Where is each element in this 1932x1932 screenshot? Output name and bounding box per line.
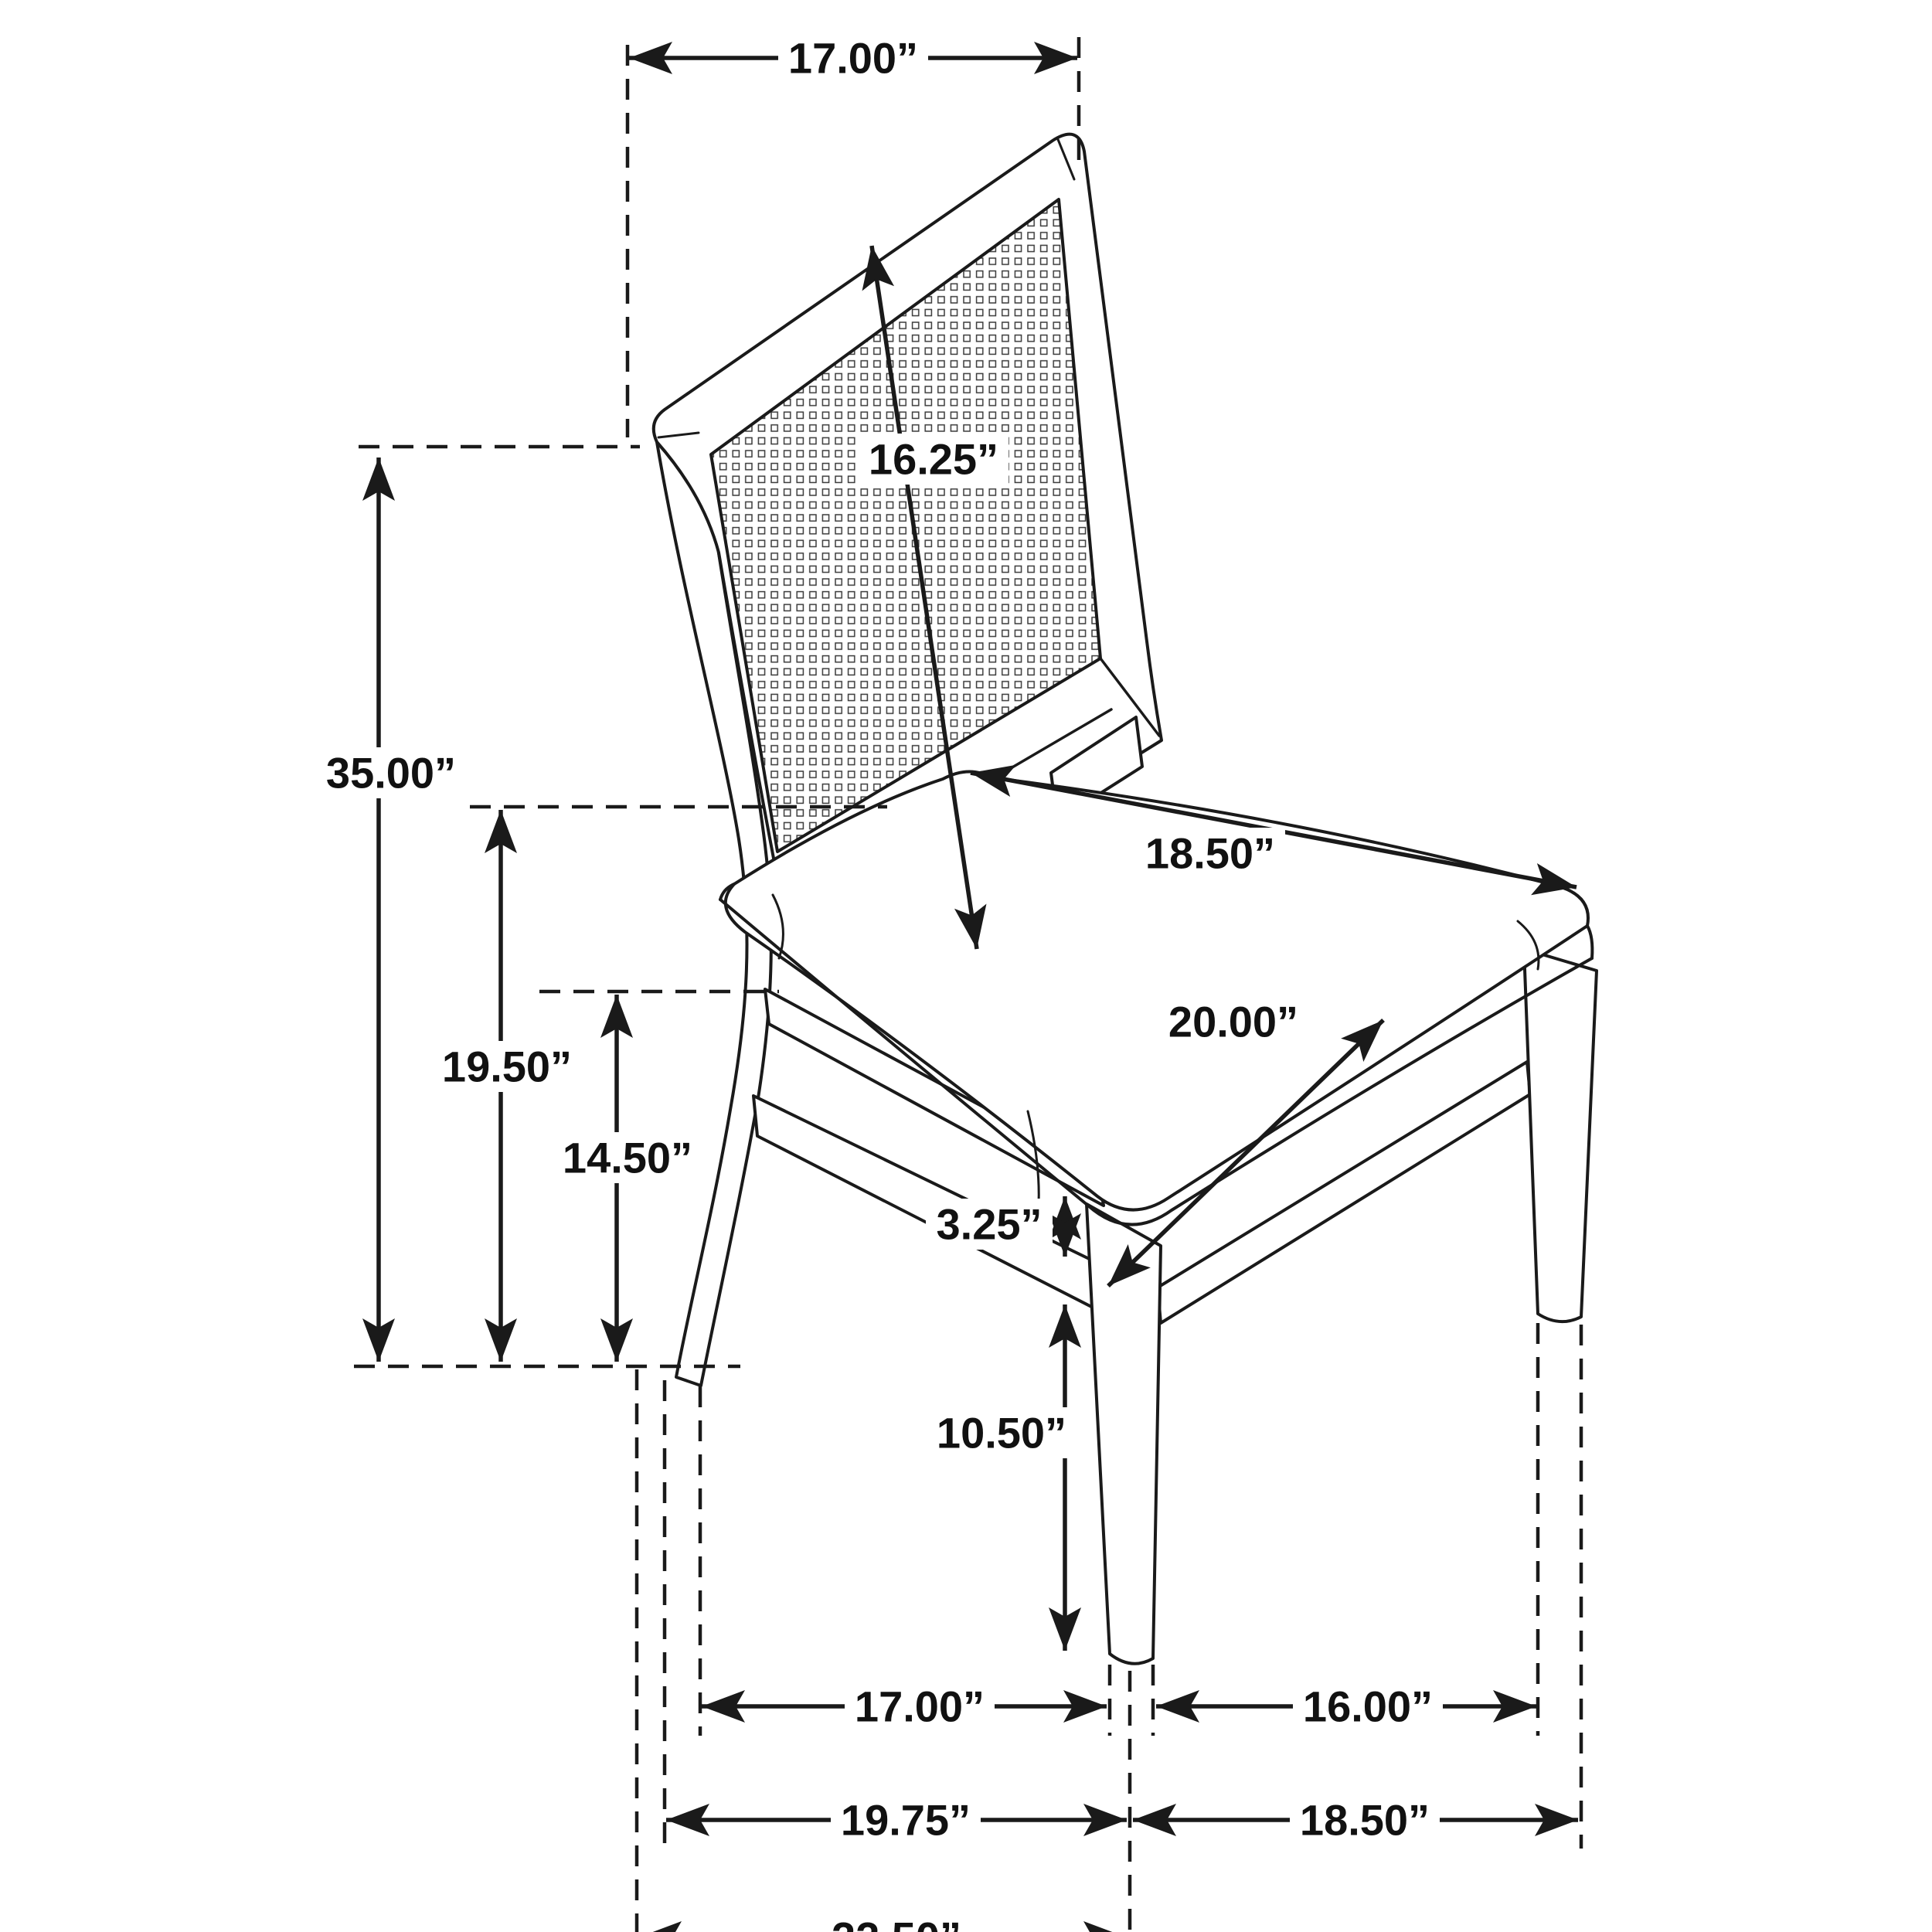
dimension-label: 20.00” bbox=[1168, 998, 1298, 1046]
dimension-label: 18.50” bbox=[1300, 1796, 1430, 1845]
dimension-width-to-right-leg: 18.50” bbox=[1133, 1794, 1578, 1845]
dimension-label: 35.00” bbox=[326, 749, 456, 798]
dimension-label: 3.25” bbox=[937, 1200, 1043, 1249]
diagram-canvas: 17.00”35.00”19.50”14.50”16.25”18.50”20.0… bbox=[0, 0, 1932, 1932]
dimension-label: 19.75” bbox=[841, 1796, 971, 1845]
dimension-seat-height: 19.50” bbox=[432, 810, 582, 1362]
chair-line-art bbox=[654, 134, 1597, 1664]
dimension-overall-depth: 22.50” bbox=[638, 1912, 1127, 1932]
dimension-depth-to-front-leg: 19.75” bbox=[666, 1794, 1127, 1845]
dimension-overall-height: 35.00” bbox=[316, 457, 466, 1362]
dimension-label: 10.50” bbox=[937, 1409, 1066, 1458]
dimension-leg-span-front-inner: 16.00” bbox=[1156, 1681, 1536, 1732]
arrowhead-icon bbox=[638, 1921, 682, 1932]
right-leg bbox=[1524, 949, 1597, 1321]
seat-cushion-band-right-join bbox=[1587, 926, 1592, 958]
dimension-label: 17.00” bbox=[788, 34, 918, 83]
dimension-label: 17.00” bbox=[855, 1682, 985, 1731]
dimension-label: 16.25” bbox=[869, 435, 998, 484]
arrowhead-icon bbox=[1083, 1921, 1127, 1932]
dimension-label: 16.00” bbox=[1303, 1682, 1433, 1731]
dimension-label: 22.50” bbox=[832, 1913, 961, 1932]
dimension-label: 18.50” bbox=[1145, 829, 1275, 878]
chair-dimension-diagram: 17.00”35.00”19.50”14.50”16.25”18.50”20.0… bbox=[0, 0, 1932, 1932]
dimension-leg-span-side-inner: 17.00” bbox=[702, 1681, 1107, 1732]
dimension-stretcher-floor-gap: 10.50” bbox=[927, 1304, 1081, 1651]
dimension-back-width-top: 17.00” bbox=[629, 32, 1077, 83]
dimension-label: 14.50” bbox=[563, 1134, 692, 1182]
dimension-label: 19.50” bbox=[442, 1043, 572, 1091]
